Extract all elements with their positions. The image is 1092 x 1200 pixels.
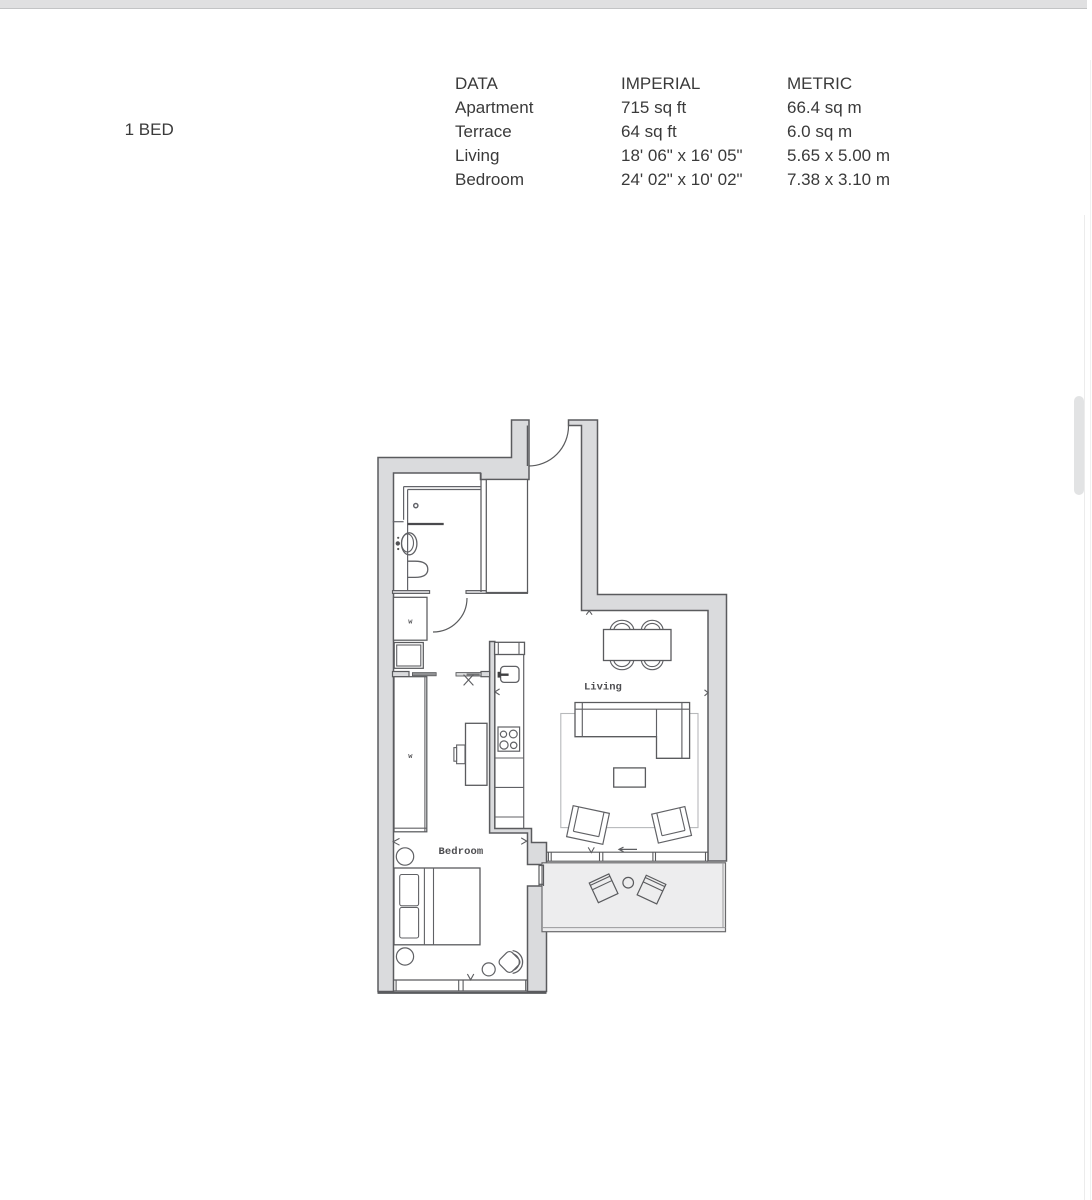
svg-text:Bedroom: Bedroom	[439, 846, 484, 858]
svg-text:Living: Living	[584, 682, 622, 694]
